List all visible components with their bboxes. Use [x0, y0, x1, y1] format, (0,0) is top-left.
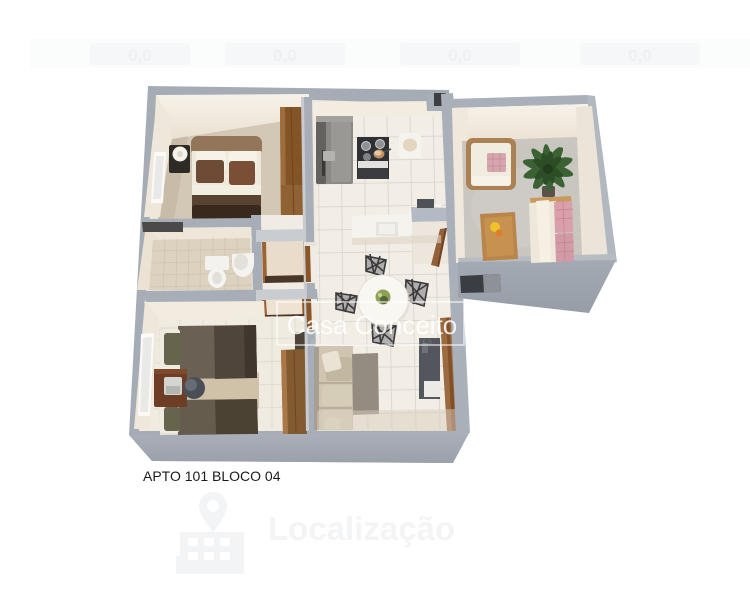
svg-text:Localização: Localização	[268, 510, 455, 547]
svg-text:ARQUITETURA E INTERIORES: ARQUITETURA E INTERIORES	[311, 340, 434, 346]
svg-text:0,0: 0,0	[128, 46, 152, 65]
svg-text:0,0: 0,0	[448, 46, 472, 65]
svg-text:APTO 101 BLOCO 04: APTO 101 BLOCO 04	[143, 468, 281, 484]
svg-text:Casa Conceito: Casa Conceito	[287, 310, 458, 340]
svg-text:0,0: 0,0	[628, 46, 652, 65]
svg-text:0,0: 0,0	[273, 46, 297, 65]
